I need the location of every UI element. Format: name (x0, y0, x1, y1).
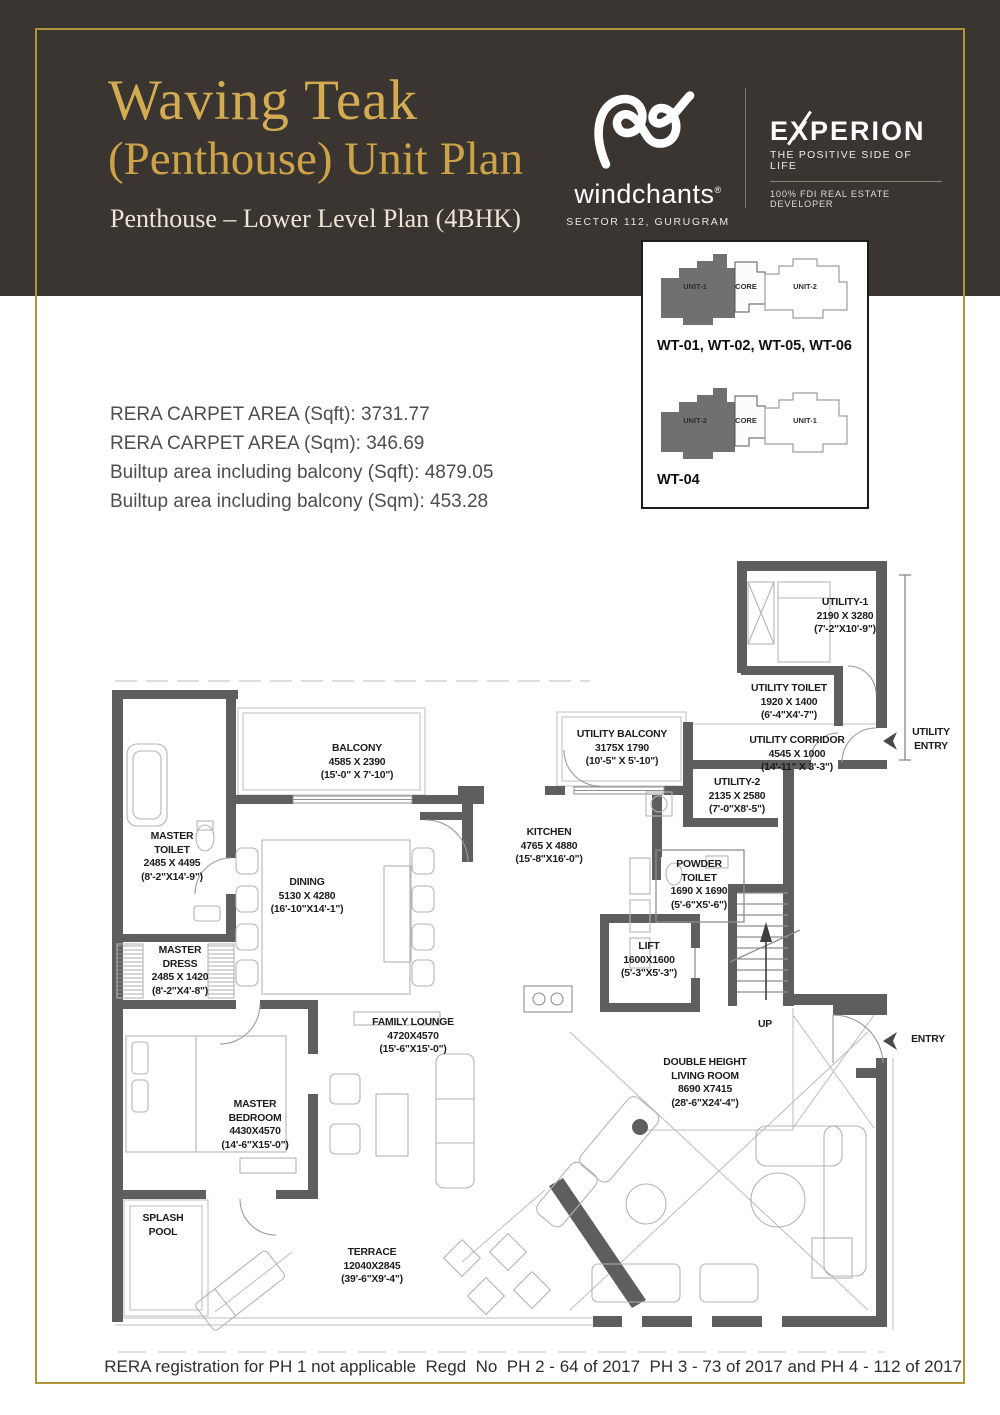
windchants-location: SECTOR 112, GURUGRAM (566, 216, 730, 228)
room-label-master-toilet: MASTER TOILET 2485 X 4495 (8'-2"X14'-9") (141, 830, 203, 885)
plan-subtitle: Penthouse – Lower Level Plan (4BHK) (110, 204, 521, 234)
entry-label: ENTRY (911, 1033, 945, 1047)
utility-entry-label: UTILITY ENTRY (903, 726, 959, 753)
rera-carpet-sqm: RERA CARPET AREA (Sqm): 346.69 (110, 429, 493, 458)
room-label-master-bedroom: MASTER BEDROOM 4430X4570 (14'-6"X15'-0") (219, 1098, 291, 1153)
keyplan1-caption: WT-01, WT-02, WT-05, WT-06 (657, 338, 852, 354)
builtup-sqft: Builtup area including balcony (Sqft): 4… (110, 458, 493, 487)
up-arrow (760, 922, 772, 1000)
builtup-sqm: Builtup area including balcony (Sqm): 45… (110, 487, 493, 516)
windchants-wordmark: windchants® (566, 179, 730, 210)
keyplan-diagram-2 (657, 388, 853, 466)
room-label-terrace: TERRACE 12040X2845 (39'-6"X9'-4") (341, 1246, 403, 1287)
keyplan-box: UNIT-1 CORE UNIT-2 WT-01, WT-02, WT-05, … (641, 240, 869, 509)
windchants-swirl-icon (589, 86, 707, 172)
column-dot (632, 1119, 648, 1135)
rera-registration-note: RERA registration for PH 1 not applicabl… (104, 1357, 962, 1377)
keyplan1-unit-left: UNIT-1 (683, 282, 707, 291)
keyplan1-core: CORE (735, 282, 757, 291)
experion-subtext: 100% FDI REAL ESTATE DEVELOPER (770, 181, 942, 209)
up-label: UP (758, 1018, 772, 1032)
area-statement-block: RERA CARPET AREA (Sqft): 3731.77 RERA CA… (110, 400, 493, 516)
experion-logo-block: EXPERION THE POSITIVE SIDE OF LIFE 100% … (770, 116, 942, 209)
keyplan2-caption: WT-04 (657, 472, 700, 488)
room-label-dining: DINING 5130 X 4280 (16'-10"X14'-1") (271, 876, 344, 917)
room-label-lift: LIFT 1600X1600 (5'-3"X5'-3") (621, 940, 677, 981)
rera-carpet-sqft: RERA CARPET AREA (Sqft): 3731.77 (110, 400, 493, 429)
room-label-utility-1: UTILITY-1 2190 X 3280 (7'-2"X10'-9") (814, 596, 876, 637)
room-label-master-dress: MASTER DRESS 2485 X 1420 (8'-2"X4'-8") (150, 944, 210, 999)
room-label-utility-toilet: UTILITY TOILET 1920 X 1400 (6'-4"X4'-7") (751, 682, 827, 723)
experion-wordmark: EXPERION (770, 116, 942, 147)
windchants-logo-block: windchants® SECTOR 112, GURUGRAM (566, 86, 730, 228)
room-label-utility-2: UTILITY-2 2135 X 2580 (7'-0"X8'-5") (709, 776, 766, 817)
room-label-splash-pool: SPLASH POOL (135, 1212, 191, 1239)
room-label-balcony: BALCONY 4585 X 2390 (15'-0" X 7'-10") (321, 742, 394, 783)
room-label-living-room: DOUBLE HEIGHT LIVING ROOM 8690 X7415 (28… (650, 1056, 760, 1111)
room-label-utility-balcony: UTILITY BALCONY 3175X 1790 (10'-5" X 5'-… (577, 728, 667, 769)
experion-tagline: THE POSITIVE SIDE OF LIFE (770, 150, 942, 172)
registered-mark: ® (714, 185, 721, 195)
keyplan-diagram-1 (657, 254, 853, 332)
page-title: Waving Teak (108, 68, 418, 133)
room-label-kitchen: KITCHEN 4765 X 4880 (15'-8"X16'-0") (515, 826, 582, 867)
keyplan2-core: CORE (735, 416, 757, 425)
keyplan1-unit-right: UNIT-2 (793, 282, 817, 291)
keyplan2-unit-right: UNIT-1 (793, 416, 817, 425)
brand-divider (745, 88, 746, 208)
room-label-utility-corridor: UTILITY CORRIDOR 4545 X 1000 (14'-11" X … (749, 734, 844, 775)
room-label-powder-toilet: POWDER TOILET 1690 X 1690 (5'-6"X5'-6") (667, 858, 731, 913)
room-label-family-lounge: FAMILY LOUNGE 4720X4570 (15'-6"X15'-0") (372, 1016, 454, 1057)
keyplan2-unit-left: UNIT-2 (683, 416, 707, 425)
page-title-line2: (Penthouse) Unit Plan (108, 132, 523, 186)
